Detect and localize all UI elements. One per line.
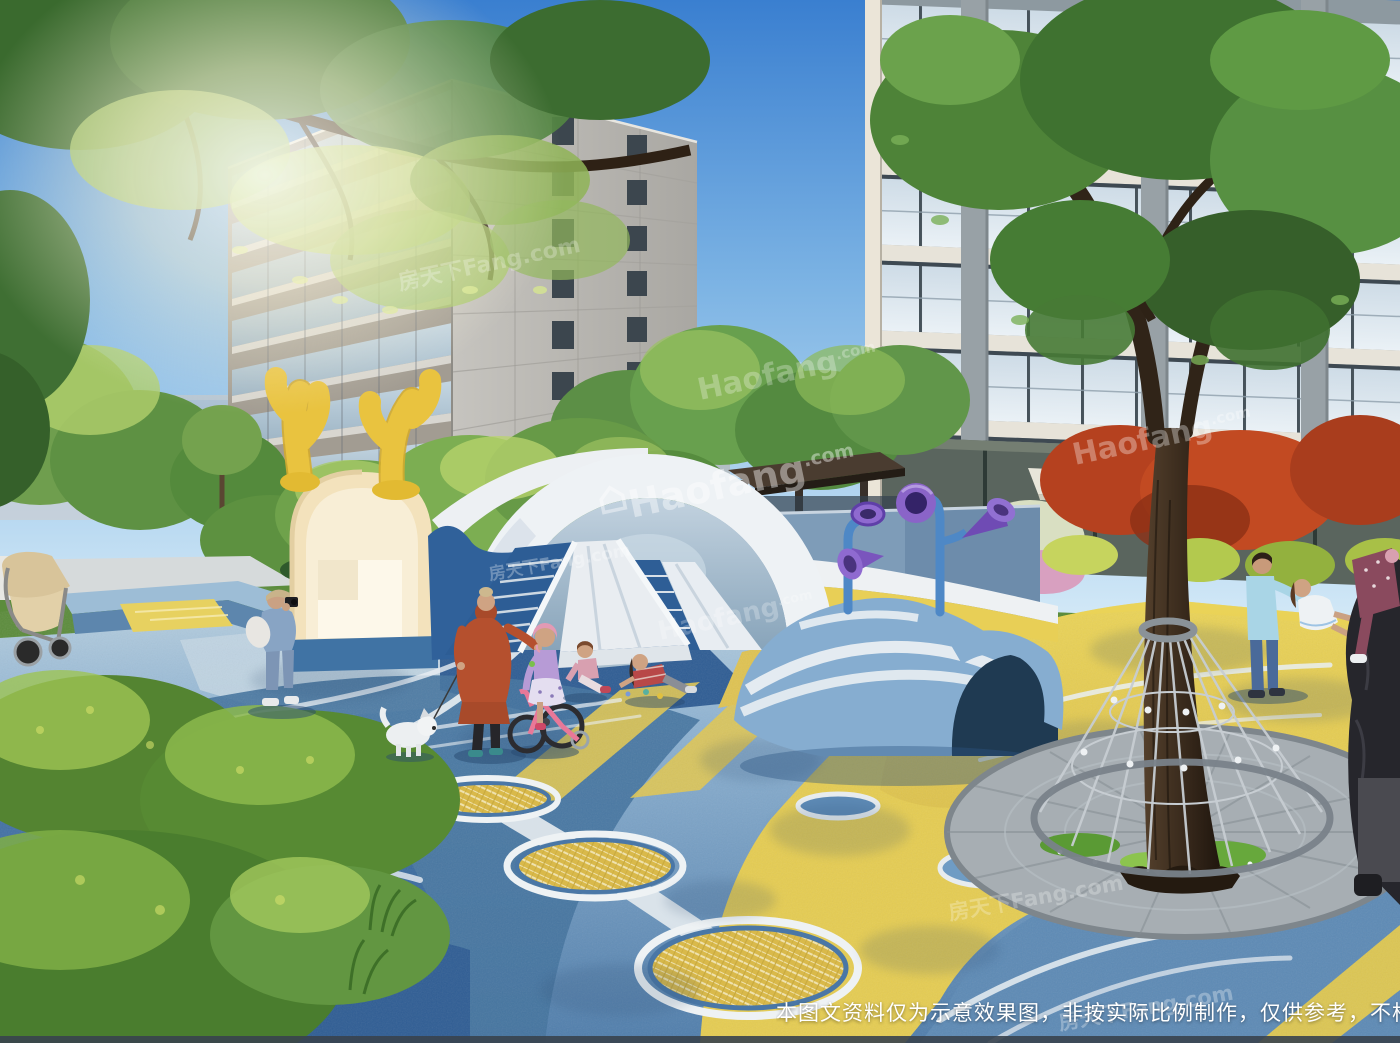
playground-rendering: Haofang.com Haofang.com Haofang.com Haof… xyxy=(0,0,1400,1043)
disclaimer-text: 本图文资料仅为示意效果图，非按实际比例制作，仅供参考，不构成开 xyxy=(776,998,1400,1030)
bottom-edge-band xyxy=(0,1036,1400,1043)
cream-arch-pavilion xyxy=(286,472,438,672)
rendering-canvas: Haofang.com Haofang.com Haofang.com Haof… xyxy=(0,0,1400,1043)
